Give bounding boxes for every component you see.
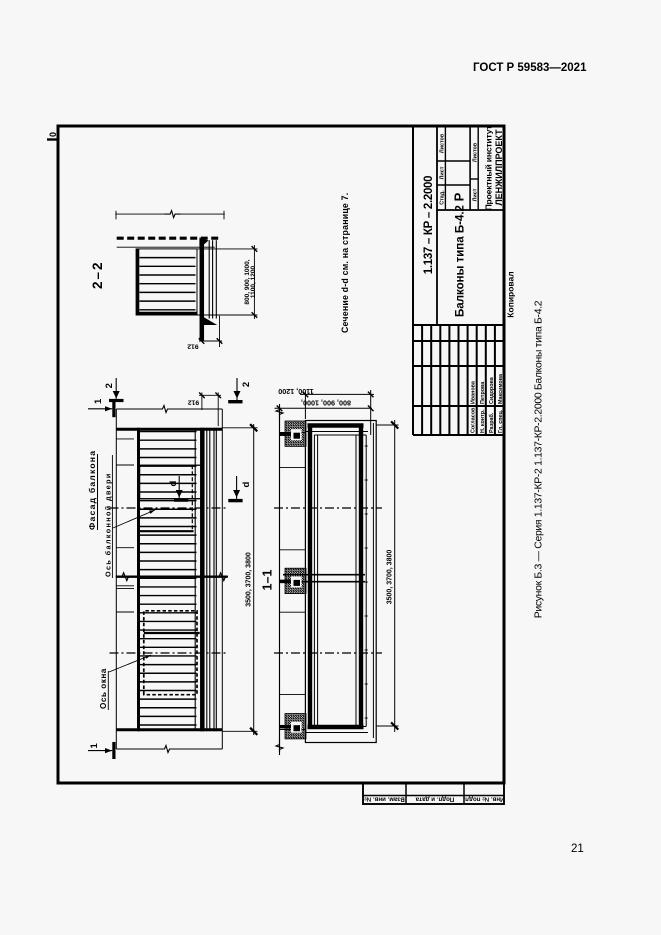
svg-text:2–2: 2–2 bbox=[90, 260, 105, 289]
svg-text:Иванова: Иванова bbox=[471, 380, 477, 404]
svg-text:Стад.: Стад. bbox=[440, 190, 446, 205]
svg-text:Ось окна: Ось окна bbox=[99, 668, 108, 709]
svg-text:d: d bbox=[168, 481, 179, 487]
svg-text:Лист: Лист bbox=[473, 188, 479, 201]
svg-text:Инв. № подл.: Инв. № подл. bbox=[463, 796, 504, 803]
svg-text:Сечение d-d см. на странице 7.: Сечение d-d см. на странице 7. bbox=[340, 193, 350, 333]
svg-text:912: 912 bbox=[187, 342, 199, 349]
svg-text:Копировал: Копировал bbox=[506, 271, 516, 317]
svg-text:Проектный институт: Проектный институт bbox=[484, 126, 494, 211]
svg-text:3500, 3700, 3800: 3500, 3700, 3800 bbox=[387, 550, 394, 605]
svg-text:Рисунок Б.3 — Серия 1.137-КР-2: Рисунок Б.3 — Серия 1.137-КР-2 1.137-КР-… bbox=[534, 300, 545, 618]
svg-text:Листов: Листов bbox=[440, 133, 446, 153]
svg-text:1: 1 bbox=[93, 398, 104, 404]
svg-text:2: 2 bbox=[241, 382, 252, 387]
svg-text:Лист: Лист bbox=[440, 166, 446, 179]
svg-text:Взам. инв. №: Взам. инв. № bbox=[364, 796, 405, 803]
svg-text:3500, 3700, 3800: 3500, 3700, 3800 bbox=[245, 552, 252, 607]
svg-text:1100, 1200: 1100, 1200 bbox=[250, 266, 257, 299]
svg-text:Сидорова: Сидорова bbox=[489, 376, 495, 404]
svg-text:912: 912 bbox=[188, 398, 200, 405]
svg-text:d: d bbox=[241, 482, 252, 488]
svg-text:800, 900, 1000,: 800, 900, 1000, bbox=[301, 399, 351, 408]
svg-text:Максимова: Максимова bbox=[498, 373, 504, 404]
svg-text:Петрова: Петрова bbox=[480, 381, 486, 404]
svg-text:2: 2 bbox=[104, 383, 115, 388]
svg-text:1.137 – КР – 2.2000: 1.137 – КР – 2.2000 bbox=[423, 176, 435, 275]
svg-text:Гл. спец.: Гл. спец. bbox=[498, 409, 504, 433]
svg-text:1: 1 bbox=[89, 743, 100, 749]
svg-text:Ось балконной двери: Ось балконной двери bbox=[104, 472, 113, 577]
svg-text:0: 0 bbox=[48, 132, 58, 137]
svg-text:Подп. и дата: Подп. и дата bbox=[415, 796, 454, 803]
svg-text:Фасад балкона: Фасад балкона bbox=[87, 450, 97, 530]
svg-text:Разраб.: Разраб. bbox=[488, 412, 495, 433]
svg-text:Балконы типа Б-4.2: Балконы типа Б-4.2 bbox=[455, 205, 467, 317]
svg-text:Согласов.: Согласов. bbox=[471, 406, 477, 433]
svg-text:ЛЕНЖИЛПРОЕКТ: ЛЕНЖИЛПРОЕКТ bbox=[494, 129, 504, 206]
svg-text:1–1: 1–1 bbox=[261, 570, 275, 591]
svg-text:1100, 1200: 1100, 1200 bbox=[278, 387, 314, 396]
svg-text:Р: Р bbox=[452, 192, 467, 201]
svg-text:Н. контр.: Н. контр. bbox=[480, 409, 486, 433]
svg-text:Листов: Листов bbox=[473, 142, 479, 162]
